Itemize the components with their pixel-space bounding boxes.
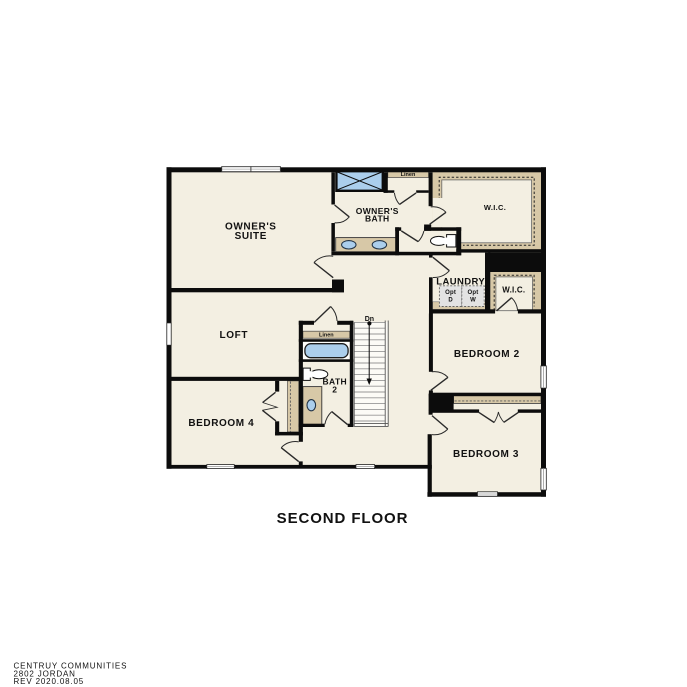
svg-text:SUITE: SUITE — [235, 231, 267, 242]
svg-text:BEDROOM 4: BEDROOM 4 — [188, 418, 254, 429]
svg-text:Opt: Opt — [468, 290, 479, 296]
svg-text:Linen: Linen — [401, 172, 416, 178]
svg-text:SECOND FLOOR: SECOND FLOOR — [277, 510, 409, 527]
svg-text:LOFT: LOFT — [220, 330, 249, 341]
svg-text:W.I.C.: W.I.C. — [484, 203, 506, 212]
svg-text:BEDROOM 2: BEDROOM 2 — [454, 349, 520, 360]
svg-text:Linen: Linen — [319, 333, 334, 339]
svg-text:D: D — [448, 297, 453, 303]
svg-text:Opt: Opt — [445, 290, 456, 296]
svg-text:BEDROOM 3: BEDROOM 3 — [453, 449, 519, 460]
svg-text:W: W — [470, 297, 476, 303]
svg-text:Dn: Dn — [365, 316, 374, 323]
svg-text:REV 2020.08.05: REV 2020.08.05 — [14, 677, 85, 686]
svg-text:BATH: BATH — [365, 214, 390, 224]
svg-text:W.I.C.: W.I.C. — [502, 286, 525, 295]
svg-text:2: 2 — [332, 385, 337, 395]
svg-text:LAUNDRY: LAUNDRY — [436, 276, 485, 287]
